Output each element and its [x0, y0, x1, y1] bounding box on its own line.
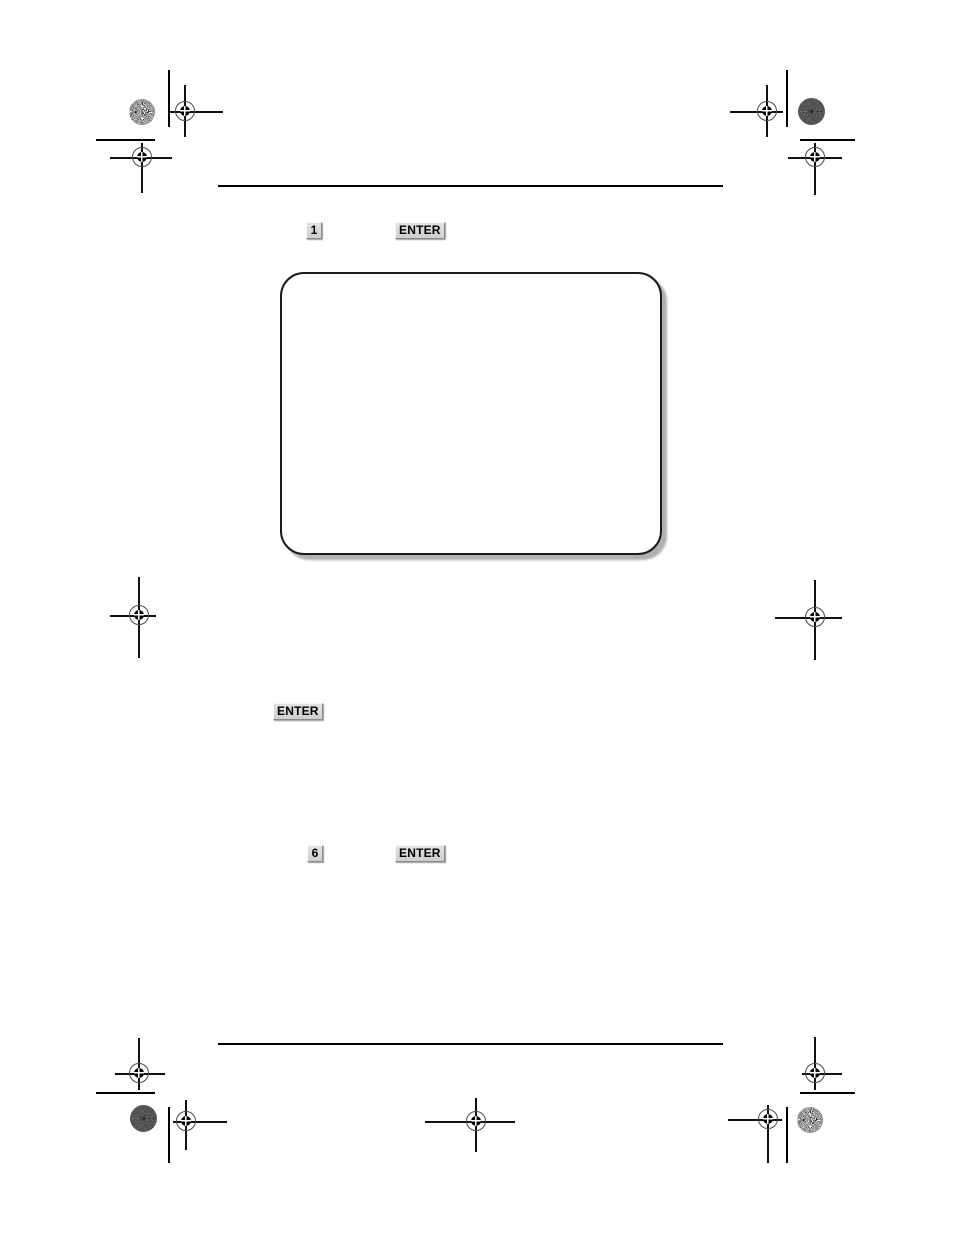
crop-line: [96, 139, 155, 141]
registration-mark-icon: [758, 1109, 778, 1129]
registration-mark-icon: [805, 607, 825, 627]
registration-mark-icon: [176, 1111, 196, 1131]
star-target-icon: [130, 1105, 157, 1132]
registration-mark-icon: [805, 147, 825, 167]
crop-line: [800, 1092, 855, 1094]
key-1-badge: 1: [306, 222, 322, 239]
registration-mark-icon: [466, 1111, 486, 1131]
crop-line: [168, 1107, 170, 1163]
header-rule: [218, 185, 723, 187]
registration-mark-icon: [132, 147, 152, 167]
key-6-badge: 6: [307, 845, 323, 862]
star-target-icon: [797, 1107, 823, 1133]
crop-line: [800, 139, 855, 141]
crop-line: [786, 70, 788, 127]
enter-key-badge: ENTER: [395, 222, 445, 239]
registration-mark-icon: [129, 1063, 149, 1083]
registration-mark-icon: [129, 605, 149, 625]
manual-page: 1 ENTER ENTER 6 ENTER: [0, 0, 954, 1235]
enter-key-badge: ENTER: [395, 845, 445, 862]
crop-line: [96, 1092, 155, 1094]
crop-line: [786, 1107, 788, 1163]
star-target-icon: [129, 99, 155, 125]
crop-line: [168, 70, 170, 127]
registration-mark-icon: [757, 101, 777, 121]
enter-key-badge: ENTER: [273, 703, 323, 720]
registration-mark-icon: [175, 101, 195, 121]
registration-mark-icon: [805, 1063, 825, 1083]
footer-rule: [218, 1043, 723, 1045]
star-target-icon: [798, 98, 825, 125]
screen-display-placeholder: [280, 272, 662, 555]
